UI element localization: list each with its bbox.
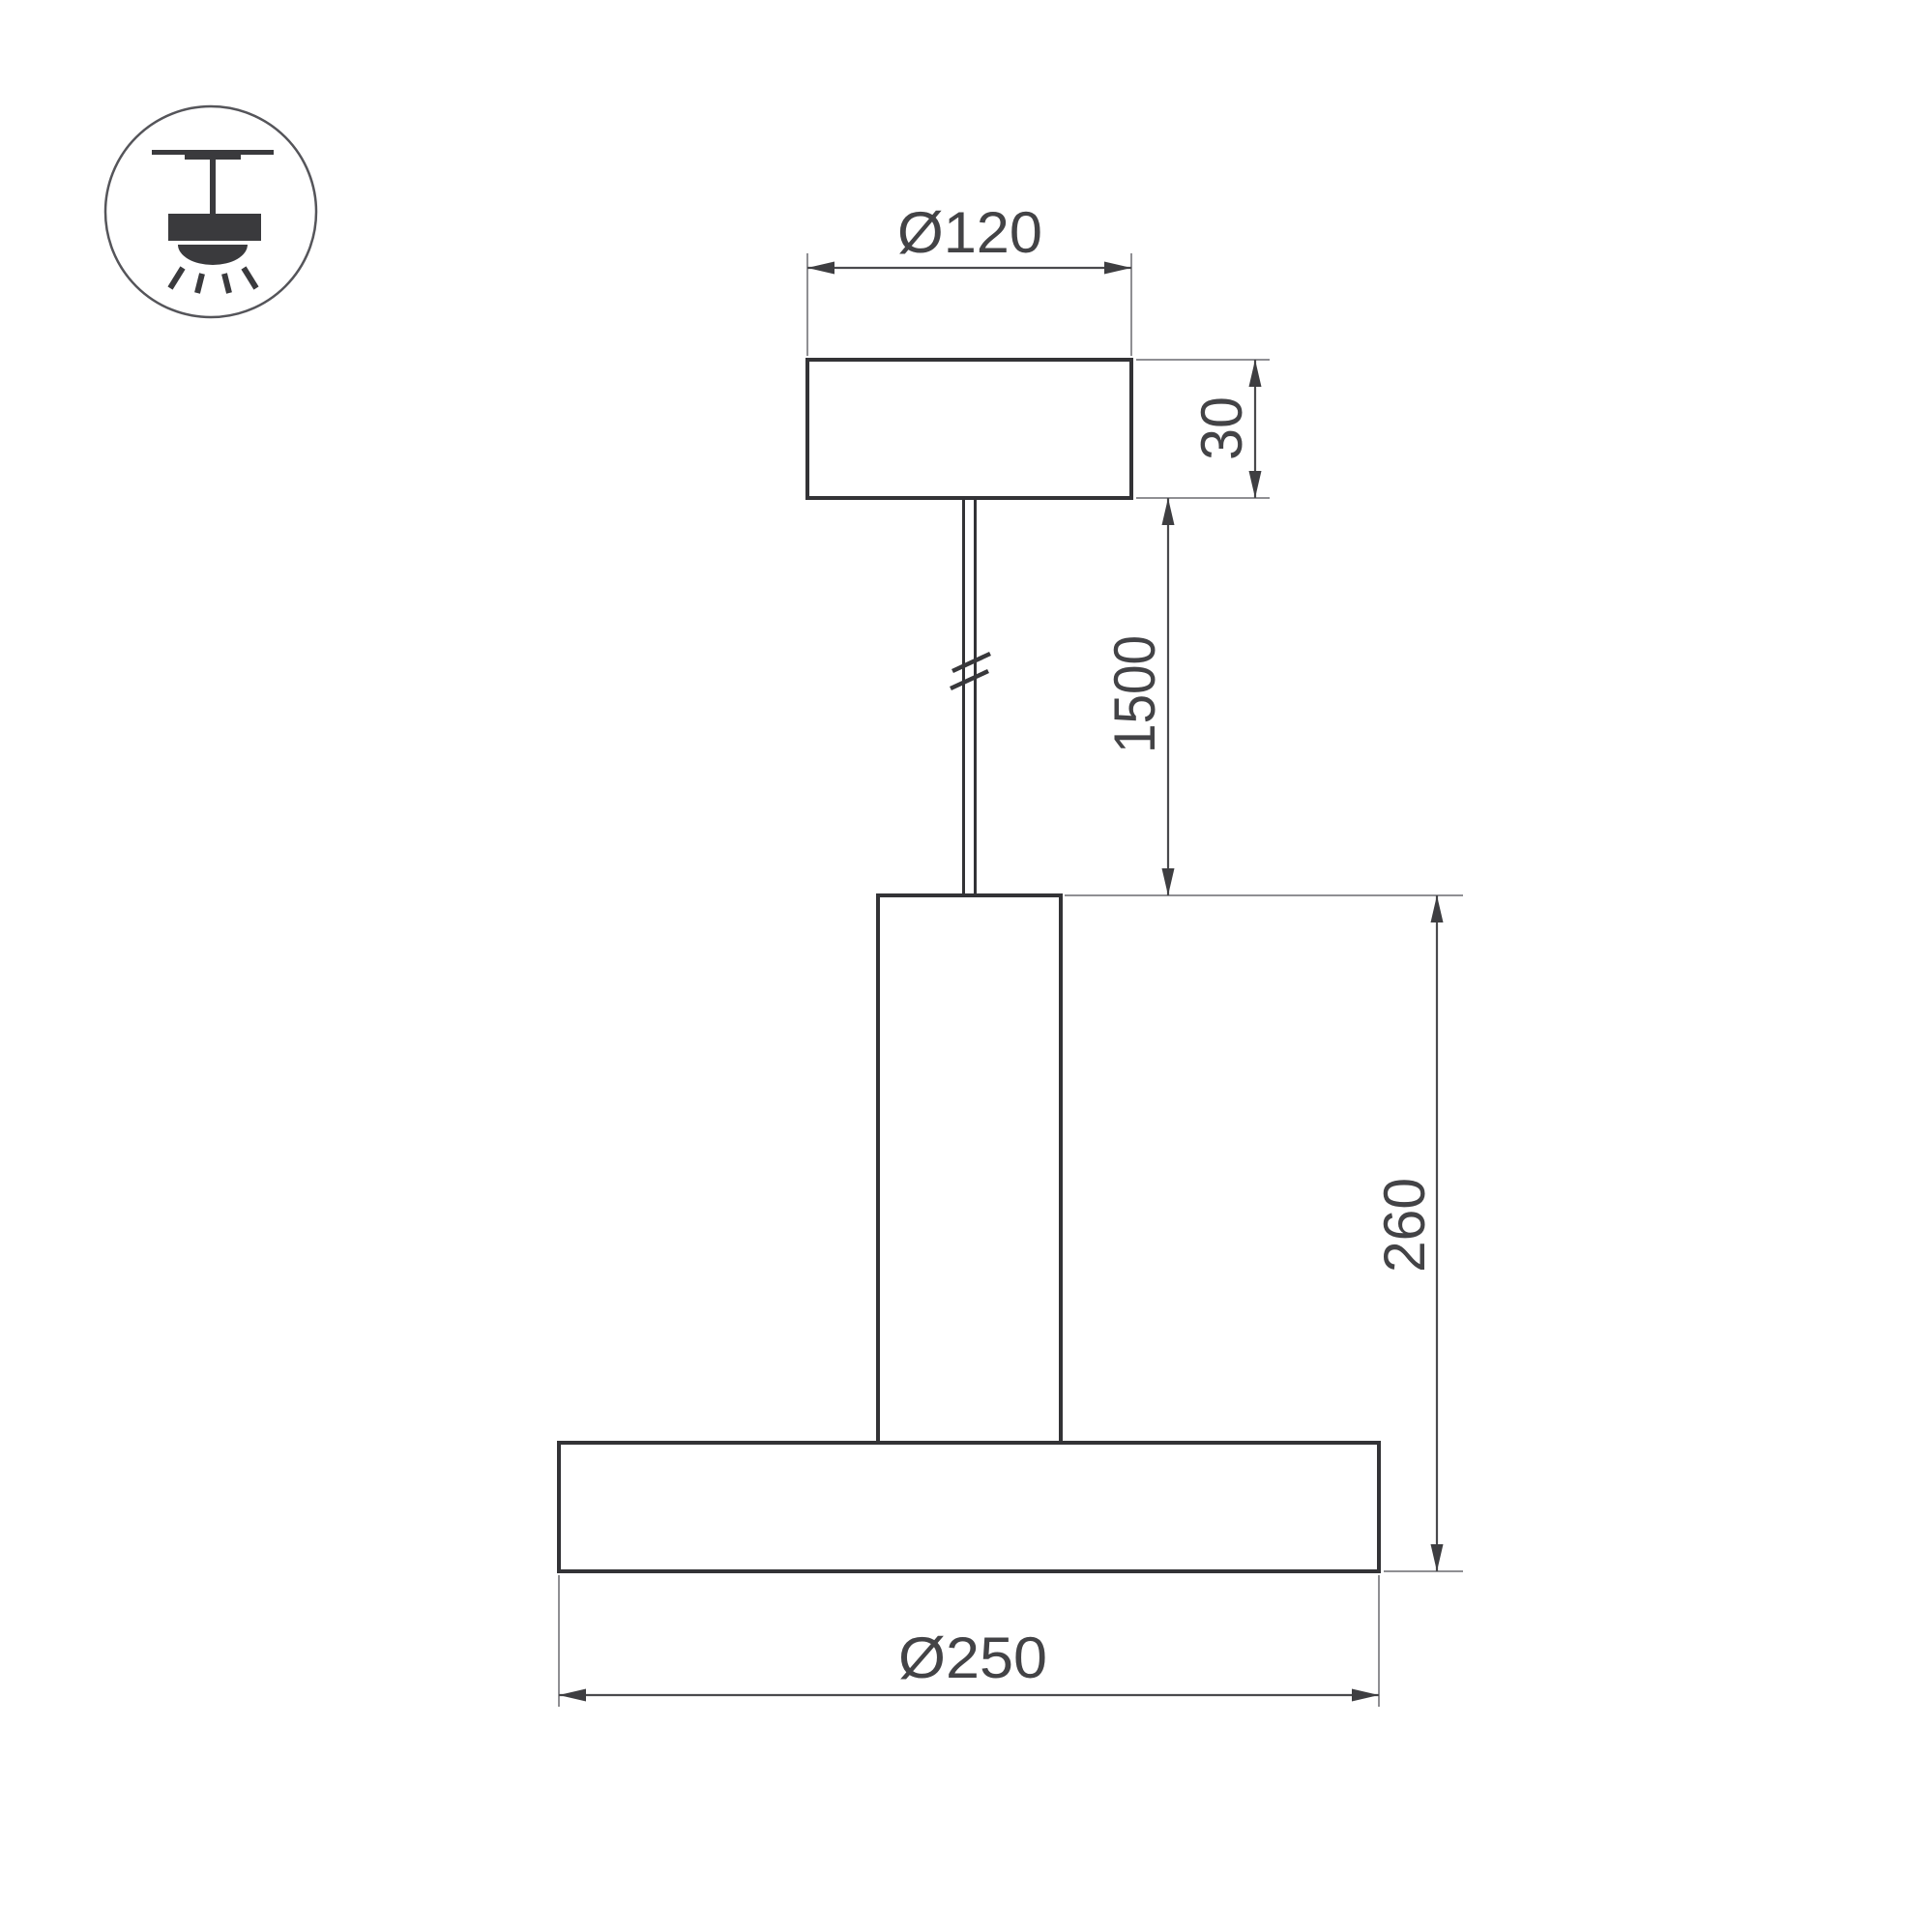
break-slash xyxy=(952,654,990,671)
arrow-right-icon xyxy=(1352,1689,1379,1702)
dimension-canopy-diameter: Ø120 xyxy=(807,200,1131,275)
drawing-canvas: Ø120 30 1500 260 Ø250 xyxy=(0,0,1932,1932)
arrow-left-icon xyxy=(559,1689,586,1702)
dim-label-canopy-height: 30 xyxy=(1189,396,1254,460)
break-slash xyxy=(951,671,988,688)
arrow-down-icon xyxy=(1249,471,1262,498)
suspension-rod xyxy=(210,157,216,215)
lamp-cylinder xyxy=(878,895,1061,1443)
dimension-canopy-height: 30 xyxy=(1189,360,1262,498)
dim-label-canopy-diameter: Ø120 xyxy=(897,200,1042,265)
arrow-right-icon xyxy=(1104,262,1131,275)
dimension-fixture-height: 260 xyxy=(1372,895,1444,1571)
suspension-cable xyxy=(964,498,976,895)
arrow-down-icon xyxy=(1431,1544,1444,1571)
arrow-left-icon xyxy=(807,262,834,275)
dim-label-shade-diameter: Ø250 xyxy=(898,1625,1047,1690)
arrow-up-icon xyxy=(1249,360,1262,387)
canopy xyxy=(807,360,1131,498)
arrow-up-icon xyxy=(1431,895,1444,922)
dimension-shade-diameter: Ø250 xyxy=(559,1625,1379,1702)
dimension-suspension-length: 1500 xyxy=(1102,498,1175,895)
dim-label-suspension-length: 1500 xyxy=(1102,635,1167,753)
icon-lamp-body xyxy=(168,214,261,241)
mounting-type-badge xyxy=(105,106,316,317)
lamp-shade xyxy=(559,1443,1379,1571)
dim-label-fixture-height: 260 xyxy=(1372,1178,1437,1273)
cable-break-symbol xyxy=(951,654,990,688)
fixture xyxy=(559,360,1379,1571)
arrow-down-icon xyxy=(1162,868,1175,895)
pendant-lamp-technical-drawing: Ø120 30 1500 260 Ø250 xyxy=(0,0,1932,1932)
arrow-up-icon xyxy=(1162,498,1175,525)
